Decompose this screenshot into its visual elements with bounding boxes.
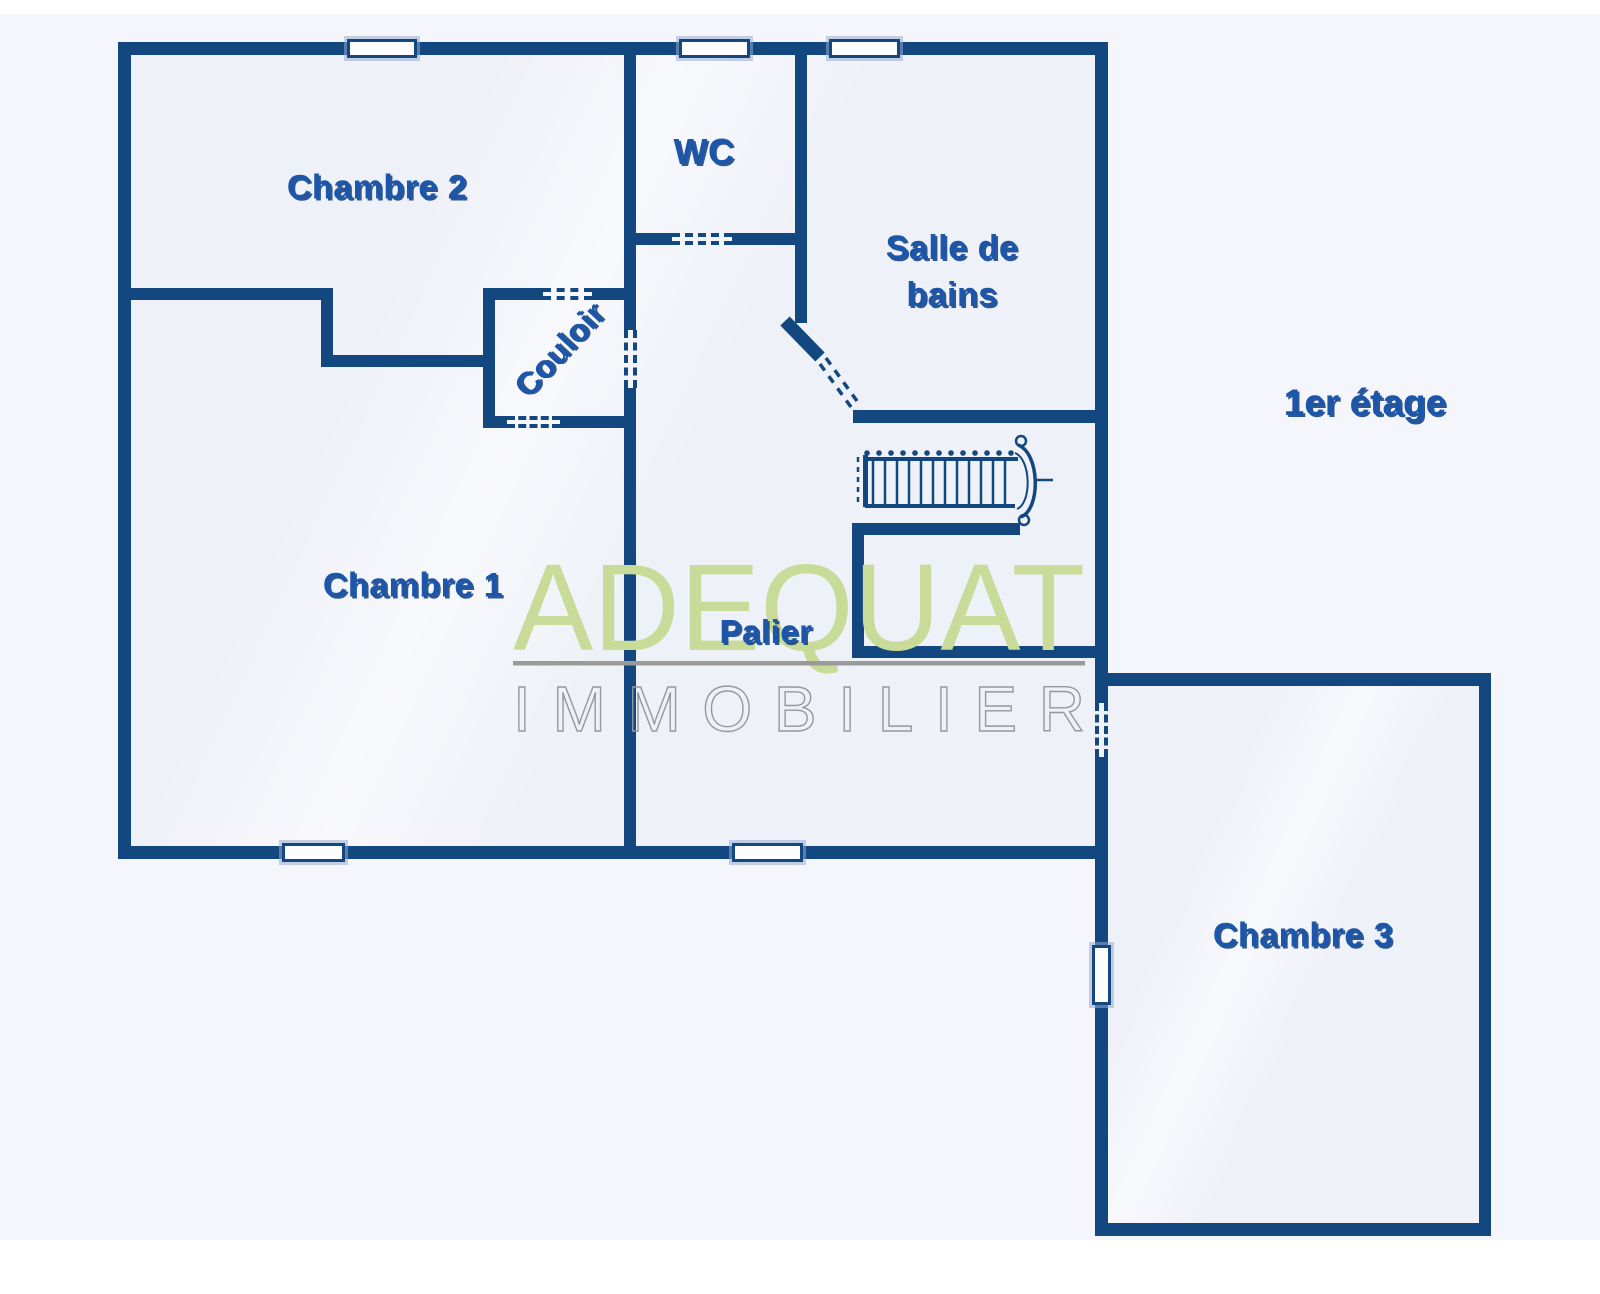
wall-chambre3-bottom	[1096, 1223, 1491, 1236]
staircase	[835, 425, 1065, 530]
wall-sdb-bottom	[853, 410, 1108, 423]
wall-couloir-left	[483, 288, 495, 428]
wall-chambre2-bottom-a	[131, 288, 333, 300]
label-palier: Palier	[720, 613, 813, 651]
door-opening-couloir-palier	[624, 330, 637, 388]
label-salle-de-bains: Salle de bains	[886, 225, 1019, 319]
wall-divider-upper	[624, 42, 636, 330]
door-opening-salle-de-bains	[780, 315, 870, 425]
wall-stairwell-bottom	[852, 646, 1108, 658]
wall-chambre3-right	[1479, 673, 1491, 1236]
bottom-margin	[0, 1240, 1600, 1294]
wall-wc-sdb-divider	[795, 42, 807, 323]
label-salle-de-bains-line1: Salle de	[886, 225, 1019, 272]
wall-wc-bottom-left	[636, 233, 672, 245]
wall-wc-bottom-right	[732, 233, 795, 245]
door-opening-wc	[672, 233, 732, 245]
wall-exterior-top	[118, 42, 1108, 55]
wall-exterior-right-lower	[1095, 1005, 1108, 1236]
wall-chambre3-top	[1096, 673, 1491, 686]
window-chambre2	[347, 39, 417, 58]
window-salle-de-bains	[829, 39, 900, 58]
window-chambre1	[282, 843, 345, 862]
label-chambre1: Chambre 1	[323, 567, 503, 606]
wall-couloir-top-a	[483, 288, 543, 300]
wall-couloir-bottom-b	[560, 416, 636, 428]
label-wc: WC	[674, 131, 735, 173]
wall-couloir-top-b	[592, 288, 636, 300]
door-opening-couloir-chambre1	[507, 416, 560, 428]
label-chambre3: Chambre 3	[1213, 917, 1393, 956]
wall-couloir-bottom-a	[483, 416, 507, 428]
label-salle-de-bains-line2: bains	[886, 272, 1019, 319]
wall-stairwell-left	[852, 523, 864, 658]
wall-exterior-right-mid	[1095, 757, 1108, 945]
wall-exterior-right-upper	[1095, 42, 1108, 703]
window-palier	[732, 843, 803, 862]
window-chambre3	[1092, 945, 1111, 1005]
wall-exterior-left	[118, 42, 131, 859]
window-wc	[679, 39, 750, 58]
wall-stair-bottom	[852, 523, 1020, 535]
door-opening-chambre3	[1095, 703, 1108, 757]
top-margin	[0, 0, 1600, 14]
page-background: { "floor": { "label": "1er étage" }, "ro…	[0, 0, 1600, 1294]
floor-title: 1er étage	[1284, 382, 1447, 424]
label-chambre2: Chambre 2	[287, 169, 467, 208]
wall-divider-lower	[624, 388, 636, 846]
wall-chambre2-bottom-b	[321, 355, 495, 367]
wall-exterior-bottom	[118, 846, 1108, 859]
